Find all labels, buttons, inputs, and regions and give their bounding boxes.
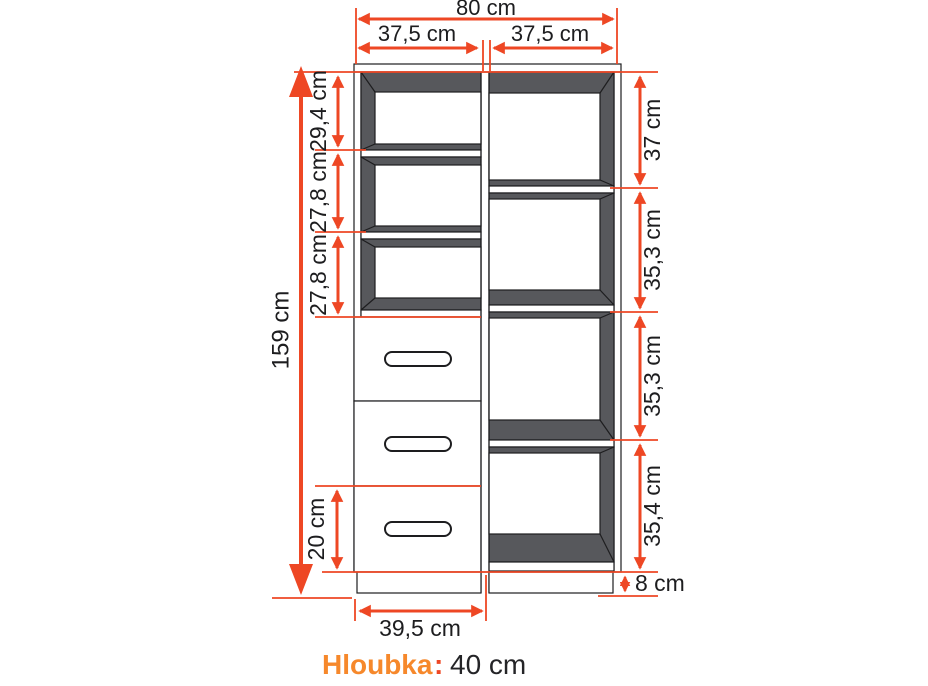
right-shelf-board-2 (489, 305, 614, 312)
right-section-1-label: 37 cm (639, 99, 665, 162)
drawer-2 (354, 401, 481, 486)
right-shelf-board-3 (489, 440, 614, 447)
depth-separator: : (434, 649, 443, 680)
left-shelf-board-2 (361, 232, 481, 239)
depth-note: Hloubka : 40 cm (322, 649, 526, 680)
drawer-3-handle (385, 522, 451, 536)
right-shelf-compartment-4 (489, 447, 614, 562)
depth-label: Hloubka (322, 649, 433, 680)
drawer-2-handle (385, 437, 451, 451)
left-shelf-board-1 (361, 150, 481, 157)
base-height-label: 8 cm (635, 570, 685, 596)
total-height-label: 159 cm (267, 291, 294, 370)
base-width-label: 39,5 cm (379, 615, 461, 641)
right-section-3-label: 35,3 cm (639, 335, 665, 417)
left-section-1-label: 29,4 cm (305, 70, 331, 152)
right-shelf-compartment-2 (489, 193, 614, 305)
left-column-width-label: 37,5 cm (378, 21, 456, 46)
left-shelf-compartment-1 (361, 72, 481, 150)
right-section-4-label: 35,4 cm (639, 465, 665, 547)
drawer-1 (354, 317, 481, 401)
left-shelf-compartment-2 (361, 157, 481, 232)
depth-value: 40 cm (450, 649, 526, 680)
right-shelf-board-1 (489, 186, 614, 193)
left-section-3-label: 27,8 cm (305, 234, 331, 316)
right-section-2-label: 35,3 cm (639, 209, 665, 291)
right-shelf-compartment-1 (489, 72, 614, 186)
left-shelf-board-3 (361, 310, 481, 317)
drawer-3 (354, 486, 481, 572)
plinth-right (489, 572, 613, 593)
total-width-label: 80 cm (456, 0, 516, 20)
bottom-drawer-height-label: 20 cm (303, 498, 329, 561)
cabinet-drawing (354, 64, 621, 593)
right-column-width-label: 37,5 cm (511, 21, 589, 46)
furniture-dimension-diagram: 80 cm 37,5 cm 37,5 cm 159 cm 29,4 cm 27,… (0, 0, 928, 686)
left-section-2-label: 27,8 cm (305, 151, 331, 233)
dimension-drawing-svg: 80 cm 37,5 cm 37,5 cm 159 cm 29,4 cm 27,… (0, 0, 928, 686)
right-bottom-board (489, 562, 614, 571)
plinth-left (357, 572, 481, 593)
drawer-1-handle (385, 352, 451, 366)
right-shelf-compartment-3 (489, 312, 614, 440)
left-shelf-compartment-3 (361, 239, 481, 310)
